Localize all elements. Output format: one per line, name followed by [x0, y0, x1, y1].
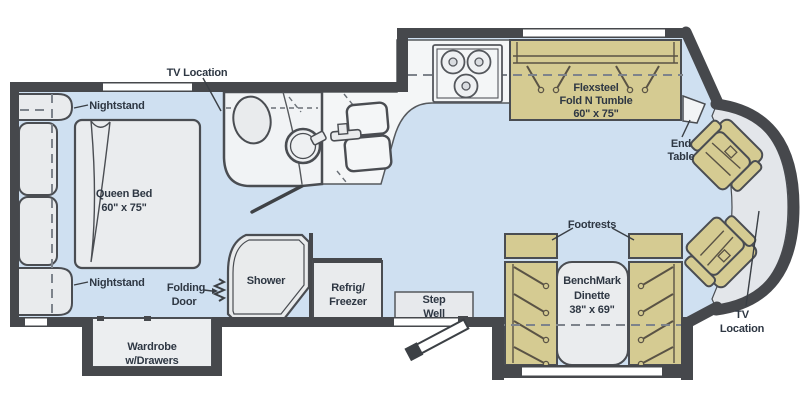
- label-sofa-3: 60" x 75": [573, 108, 618, 120]
- label-shower: Shower: [247, 275, 286, 287]
- rv-floorplan-canvas: TV Location Nightstand Queen Bed 60" x 7…: [0, 0, 800, 400]
- label-end-table-1: End: [671, 138, 691, 150]
- stove: [433, 45, 502, 102]
- window-dinette-slideout: [522, 368, 662, 376]
- rv-floorplan: TV Location Nightstand Queen Bed 60" x 7…: [0, 0, 800, 400]
- label-queen-bed: Queen Bed: [96, 188, 152, 200]
- label-refrig-2: Freezer: [329, 296, 368, 308]
- label-dinette-3: 38" x 69": [569, 304, 614, 316]
- label-refrig-1: Refrig/: [331, 282, 365, 294]
- label-tv-location-front-1: TV: [735, 309, 750, 321]
- label-nightstand-top: Nightstand: [89, 100, 144, 112]
- label-end-table-2: Table: [668, 151, 695, 163]
- label-footrests: Footrests: [568, 219, 616, 231]
- label-tv-location-bedroom: TV Location: [167, 67, 228, 79]
- label-sofa-2: Fold N Tumble: [560, 95, 633, 107]
- window-galley-slideout: [523, 30, 665, 37]
- label-sofa-1: Flexsteel: [573, 82, 618, 94]
- label-folding-door-2: Door: [172, 296, 198, 308]
- label-step-well-1: Step: [422, 294, 446, 306]
- footrest-left: [505, 234, 557, 258]
- label-nightstand-bottom: Nightstand: [89, 277, 144, 289]
- wardrobe-hinge-1: [97, 316, 104, 321]
- label-step-well-2: Well: [423, 308, 445, 320]
- footrest-right: [629, 234, 682, 258]
- label-wardrobe-2: w/Drawers: [124, 355, 178, 367]
- window-bedroom-bottom: [25, 319, 47, 326]
- label-dinette-2: Dinette: [574, 290, 610, 302]
- nightstand-bottom: [18, 268, 72, 315]
- wardrobe-hinge-2: [144, 316, 151, 321]
- label-folding-door-1: Folding: [167, 282, 205, 294]
- label-dinette-1: BenchMark: [563, 275, 622, 287]
- label-wardrobe-1: Wardrobe: [127, 341, 176, 353]
- nightstand-top: [18, 94, 72, 120]
- window-bedroom-top: [103, 84, 192, 91]
- label-tv-location-front-2: Location: [720, 323, 765, 335]
- label-queen-bed-size: 60" x 75": [101, 202, 146, 214]
